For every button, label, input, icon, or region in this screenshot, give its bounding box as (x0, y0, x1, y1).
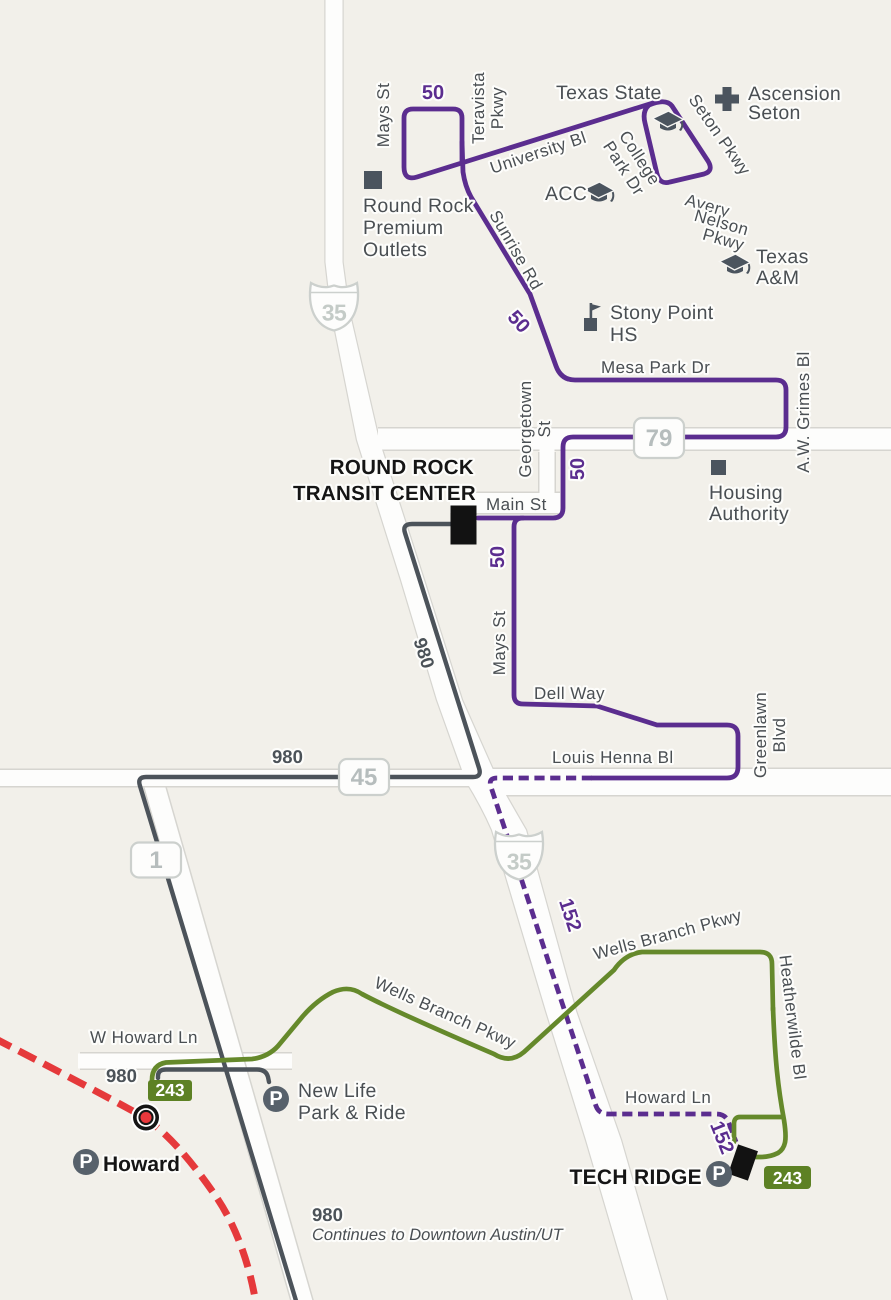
svg-text:Dell Way: Dell Way (534, 684, 605, 703)
svg-text:P: P (269, 1088, 282, 1110)
svg-text:79: 79 (646, 425, 673, 452)
svg-text:Mesa Park Dr: Mesa Park Dr (601, 358, 710, 377)
svg-text:Main St: Main St (486, 495, 547, 514)
svg-text:243: 243 (773, 1168, 802, 1188)
svg-text:50: 50 (487, 546, 509, 568)
svg-text:Mays St: Mays St (374, 83, 393, 148)
svg-text:ACC: ACC (545, 183, 587, 205)
svg-text:P: P (712, 1163, 725, 1185)
svg-text:Howard: Howard (103, 1153, 180, 1176)
svg-text:50: 50 (422, 82, 444, 104)
svg-text:Continues to Downtown Austin/U: Continues to Downtown Austin/UT (312, 1226, 565, 1244)
svg-text:35: 35 (322, 300, 347, 326)
svg-text:35: 35 (507, 849, 532, 875)
svg-text:Texas State: Texas State (556, 82, 662, 104)
svg-text:HousingAuthority: HousingAuthority (709, 482, 789, 525)
svg-text:980: 980 (272, 746, 303, 767)
svg-text:Mays St: Mays St (490, 611, 509, 676)
svg-text:50: 50 (567, 458, 589, 480)
svg-text:TECH RIDGE: TECH RIDGE (569, 1166, 702, 1189)
svg-text:45: 45 (351, 764, 378, 791)
svg-text:P: P (79, 1151, 92, 1173)
svg-text:980: 980 (106, 1065, 137, 1086)
svg-text:1: 1 (149, 847, 162, 874)
svg-text:A.W. Grimes Bl: A.W. Grimes Bl (794, 351, 813, 473)
svg-text:Howard Ln: Howard Ln (625, 1088, 711, 1107)
svg-text:W Howard Ln: W Howard Ln (90, 1028, 198, 1047)
svg-text:243: 243 (155, 1080, 184, 1100)
svg-text:980: 980 (312, 1204, 343, 1225)
svg-text:Louis Henna Bl: Louis Henna Bl (552, 748, 674, 767)
